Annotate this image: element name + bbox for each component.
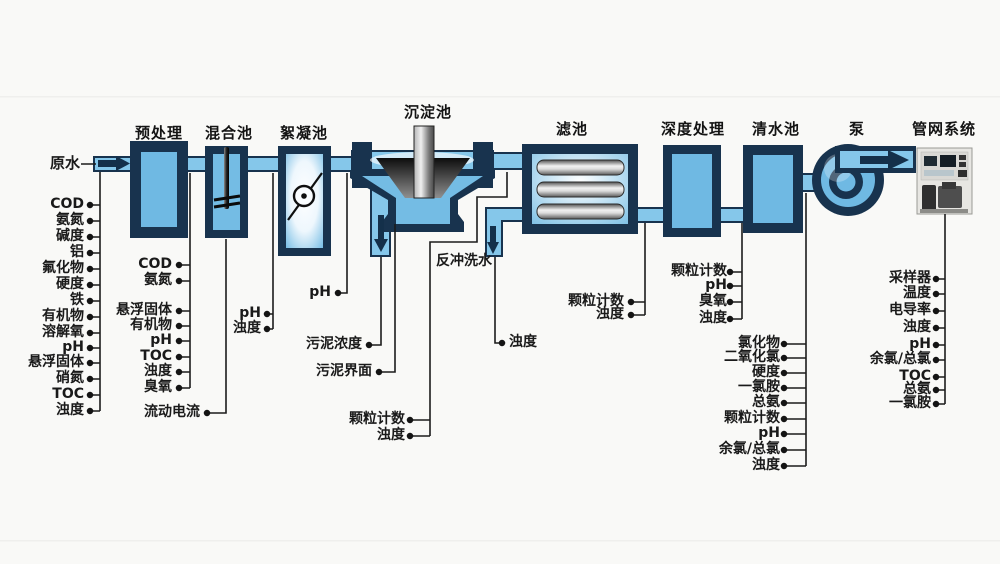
tank-filter: [522, 144, 638, 234]
param-raw-alkalinity: 碱度: [56, 228, 84, 245]
param-adv-ph: pH: [705, 277, 727, 294]
pipe-network-unit: [917, 148, 972, 214]
pipe-filter-advanced: [636, 208, 665, 222]
param-sludge-interface: 污泥界面: [316, 363, 372, 380]
param-raw-ammonia: 氨氮: [56, 212, 84, 229]
stage-title-mixing: 混合池: [205, 125, 253, 142]
connector-after-mixing: [270, 173, 273, 329]
param-raw-toc: TOC: [52, 386, 84, 403]
stage-title-clearwater: 清水池: [752, 121, 800, 138]
param-floc-turbidity: 浊度: [233, 320, 261, 337]
param-sludge-concentration: 污泥浓度: [306, 336, 362, 353]
stage-title-sedimentation: 沉淀池: [404, 104, 452, 121]
pipe-sedimentation-filter: [490, 153, 524, 169]
annotation-backwash-water: 反冲洗水: [436, 253, 492, 270]
tank-pretreatment: [130, 141, 188, 238]
param-raw-iron: 铁: [70, 292, 84, 309]
param-net-conductivity: 电导率: [889, 302, 931, 319]
param-clear-total-ammonia: 总氨: [752, 394, 780, 411]
pipe-flocculation-sedimentation: [329, 157, 354, 171]
tank-advanced-treatment: [663, 145, 721, 237]
tank-mixing: [205, 146, 248, 238]
clarifier-center-shaft: [414, 126, 434, 198]
param-raw-turbidity: 浊度: [56, 402, 84, 419]
param-backwash-turbidity: 浊度: [509, 334, 537, 351]
param-clear-residual-total-chlorine: 余氯/总氯: [719, 441, 780, 458]
param-net-monochloramine: 一氯胺: [889, 395, 931, 412]
pipe-pretreatment-mixing: [186, 157, 207, 171]
param-pre-turbidity: 浊度: [144, 363, 172, 380]
stage-title-pump: 泵: [849, 121, 865, 138]
param-net-temperature: 温度: [903, 285, 931, 302]
stage-title-advanced: 深度处理: [661, 121, 725, 138]
param-raw-hardness: 硬度: [56, 276, 84, 293]
connector-sedimentation-inlet: [341, 173, 347, 293]
connector-after-clearwater: [787, 193, 806, 466]
scan-artifact-line: [0, 96, 1000, 98]
param-raw-nitrate: 硝氮: [56, 370, 84, 387]
param-adv-turbidity: 浊度: [699, 310, 727, 327]
param-raw-cod: COD: [50, 196, 84, 213]
param-mix-streaming-current: 流动电流: [144, 404, 200, 421]
param-clear-turbidity: 浊度: [752, 457, 780, 474]
connector-filter-backwash: [495, 257, 499, 343]
stage-title-network: 管网系统: [912, 121, 976, 138]
param-adv-ozone: 臭氧: [699, 293, 727, 310]
pump: [812, 144, 916, 216]
param-sed-ph: pH: [309, 284, 331, 301]
stage-title-flocculation: 絮凝池: [280, 125, 328, 142]
param-settled-particle-count: 颗粒计数: [349, 411, 405, 428]
param-settled-turbidity: 浊度: [377, 427, 405, 444]
connector-mixing-tank: [210, 239, 226, 413]
param-clear-ph: pH: [758, 425, 780, 442]
water-treatment-process-diagram: 预处理 混合池 絮凝池 沉淀池 滤池 深度处理 清水池 泵 管网系统 原水 CO…: [0, 0, 1000, 564]
source-label-raw-water: 原水: [50, 155, 80, 172]
tank-sedimentation: [350, 126, 495, 256]
param-net-turbidity: 浊度: [903, 319, 931, 336]
param-net-residual-total-chlorine: 余氯/总氯: [870, 351, 931, 368]
connector-pipe-network: [939, 214, 945, 404]
filter-media-cylinders: [537, 160, 624, 219]
connector-after-advanced: [733, 223, 742, 319]
stage-title-filter: 滤池: [556, 121, 588, 138]
param-pre-ammonia: 氨氮: [144, 272, 172, 289]
scan-artifact-line: [0, 540, 1000, 542]
connector-after-filter: [634, 223, 645, 315]
param-raw-aluminum: 铝: [70, 244, 84, 261]
param-pre-ph: pH: [150, 332, 172, 349]
param-raw-suspended-solids: 悬浮固体: [28, 354, 84, 371]
param-pre-cod: COD: [138, 256, 172, 273]
tank-flocculation: [278, 146, 331, 256]
pipe-mixing-flocculation: [246, 157, 280, 171]
pipe-advanced-clearwater: [720, 208, 745, 222]
connector-sludge-concentration: [372, 257, 381, 345]
param-raw-fluoride: 氟化物: [42, 260, 84, 277]
param-pre-ozone: 臭氧: [144, 379, 172, 396]
stage-title-pretreatment: 预处理: [135, 125, 183, 142]
tank-clearwater: [743, 145, 803, 233]
param-raw-organics: 有机物: [42, 308, 84, 325]
param-filter-turbidity: 浊度: [596, 306, 624, 323]
